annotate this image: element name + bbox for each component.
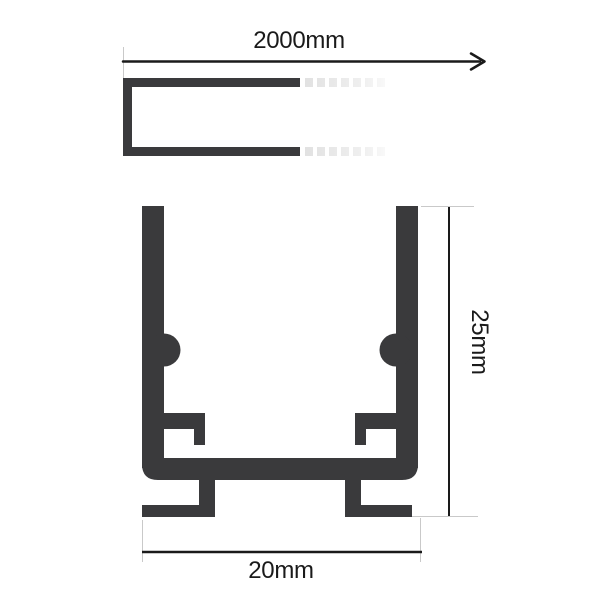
- channel-base: [142, 458, 418, 480]
- left-ledge-stub: [194, 429, 205, 445]
- length-view: [123, 47, 485, 156]
- length-dimension-label: 2000mm: [199, 27, 399, 55]
- right-ledge: [355, 413, 396, 429]
- cross-section-view: [142, 206, 478, 562]
- left-ledge: [164, 413, 205, 429]
- width-dimension-label: 20mm: [181, 557, 381, 585]
- right-foot: [345, 505, 412, 517]
- channel-side-profile: [123, 78, 300, 156]
- diagram-canvas: 2000mm 25mm 20mm: [0, 0, 600, 600]
- left-foot: [142, 505, 215, 517]
- right-ledge-stub: [355, 429, 366, 445]
- left-clip-bump: [148, 334, 181, 367]
- height-dimension-label: 25mm: [465, 242, 493, 442]
- right-clip-bump: [380, 334, 413, 367]
- diagram-drawing: [0, 0, 600, 600]
